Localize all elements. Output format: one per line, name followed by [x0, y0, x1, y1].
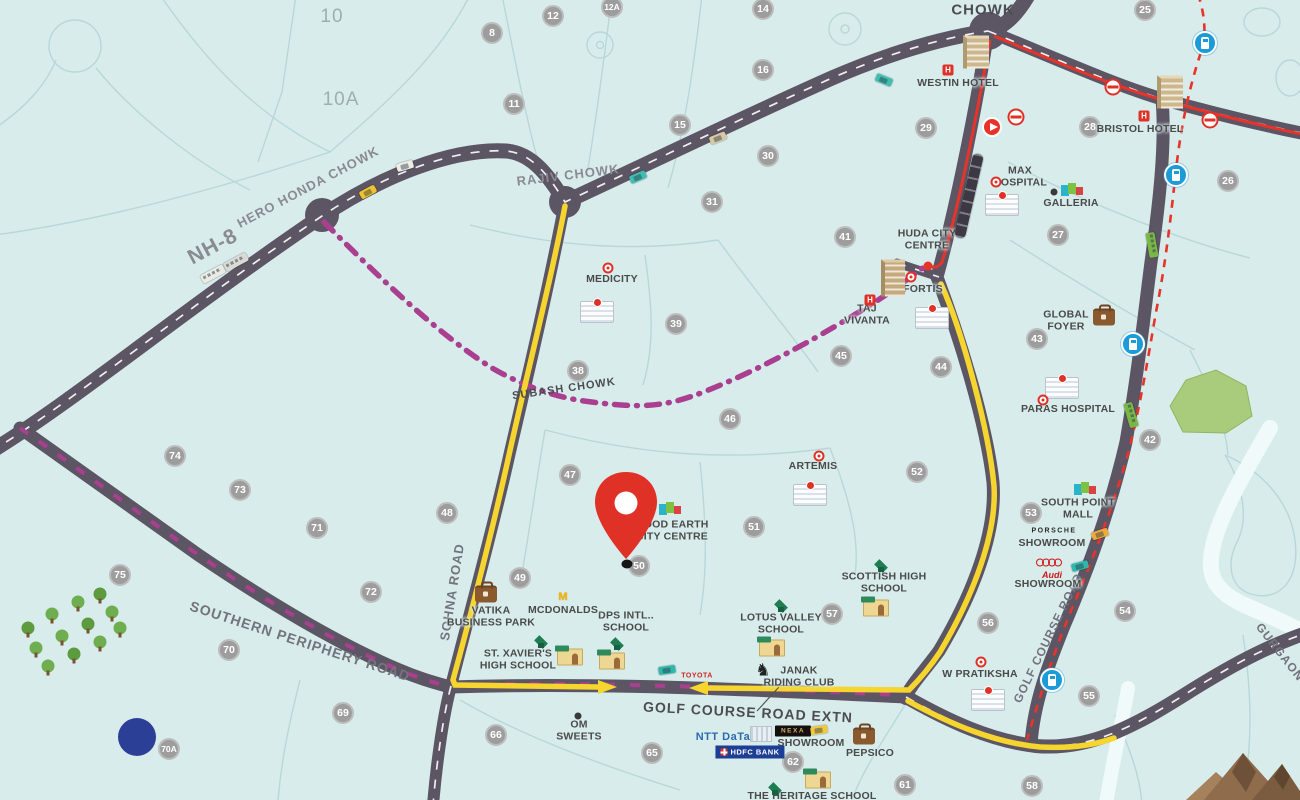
hotel-h-badge-icon: H: [943, 65, 954, 76]
poi-label: SOUTH POINT MALL: [1041, 497, 1115, 522]
car-graphic: [875, 73, 894, 87]
poi-label: BRISTOL HOTEL: [1097, 123, 1184, 135]
tree-icon: [94, 588, 107, 601]
riding-club-horse-icon: ♞: [755, 663, 770, 680]
rapid-metro-station-icon: [1121, 332, 1145, 356]
bus-graphic: [1145, 232, 1158, 258]
sector-number-marker: 72: [360, 581, 382, 603]
sector-number-marker: 26: [1217, 170, 1239, 192]
location-map: 1010ANH-8HERO HONDA CHOWKRAJIV CHOWKCHOW…: [0, 0, 1300, 800]
audi-word-logo: Audi: [1042, 570, 1062, 580]
sector-number-marker: 53: [1020, 502, 1042, 524]
hospital-marker-icon: [814, 451, 825, 462]
business-park-icon: [853, 728, 875, 745]
poi-label: OM SWEETS: [556, 719, 602, 744]
graduation-cap-icon: [533, 636, 549, 646]
graduation-cap-icon: [873, 560, 889, 570]
pond: [118, 718, 156, 756]
sector-number-marker: 48: [436, 502, 458, 524]
poi-label: JANAK RIDING CLUB: [763, 665, 834, 690]
hospital-marker-icon: [976, 657, 987, 668]
car-graphic: [658, 665, 676, 675]
graduation-cap-icon: [773, 600, 789, 610]
sector-area-label: 10A: [323, 89, 360, 111]
school-building-icon: [805, 772, 831, 789]
sector-number-marker: 41: [834, 226, 856, 248]
sector-number-marker: 65: [641, 742, 663, 764]
poi-label: MAX HOSPITAL: [993, 165, 1047, 190]
tree-icon: [22, 622, 35, 635]
sector-number-marker: 52: [906, 461, 928, 483]
tree-icon: [30, 642, 43, 655]
hotel-h-badge-icon: H: [1139, 111, 1150, 122]
sector-number-marker: 14: [752, 0, 774, 20]
sector-number-marker: 66: [485, 724, 507, 746]
hospital-marker-icon: [906, 272, 917, 283]
hotel-h-badge-icon: H: [865, 295, 876, 306]
school-building-icon: [863, 600, 889, 617]
metro-logo-icon: [1202, 112, 1219, 129]
poi-label: WESTIN HOTEL: [917, 77, 999, 89]
sector-number-marker: 54: [1114, 600, 1136, 622]
car-graphic: [1091, 528, 1110, 541]
tree-icon: [94, 636, 107, 649]
poi-label: MCDONALDS: [528, 604, 598, 616]
sector-number-marker: 56: [977, 612, 999, 634]
car-graphic: [709, 131, 728, 145]
poi-label: ARTEMIS: [789, 460, 838, 472]
school-building-icon: [557, 649, 583, 666]
direction-arrow-icon: [982, 117, 1002, 137]
hospital-building-icon: [971, 689, 1005, 711]
mcdonalds-icon: M: [558, 591, 567, 603]
car-graphic: [810, 725, 828, 735]
hdfc-logo: HDFC BANK: [715, 746, 784, 759]
rapid-metro-station-icon: [1193, 31, 1217, 55]
tree-icon: [46, 608, 59, 621]
sector-number-marker: 49: [509, 567, 531, 589]
sector-number-marker: 70A: [158, 738, 180, 760]
sector-number-marker: 44: [930, 356, 952, 378]
sector-number-marker: 50: [628, 555, 650, 577]
tree-icon: [42, 660, 55, 673]
sector-number-marker: 55: [1078, 685, 1100, 707]
sector-number-marker: 47: [559, 464, 581, 486]
bus-graphic: [223, 252, 249, 272]
mall-icon: [659, 502, 685, 516]
hospital-building-icon: [985, 194, 1019, 216]
porsche-logo: PORSCHE: [1031, 528, 1076, 535]
road-label: RAJIV CHOWK: [516, 161, 621, 188]
road-label: CHOWK: [951, 2, 1014, 19]
poi-label: SHOWROOM: [778, 737, 845, 749]
poi-label: GLOBAL FOYER: [1043, 309, 1089, 334]
sector-number-marker: 27: [1047, 224, 1069, 246]
tree-icon: [106, 606, 119, 619]
metro-train-graphic: [954, 153, 984, 239]
bus-graphic: [200, 264, 226, 284]
poi-label: MEDICITY: [586, 273, 638, 285]
business-park-icon: [1093, 309, 1115, 326]
sector-number-marker: 31: [701, 191, 723, 213]
sector-number-marker: 29: [915, 117, 937, 139]
sector-number-marker: 39: [665, 313, 687, 335]
hospital-building-icon: [915, 307, 949, 329]
map-markers-layer: 1010ANH-8HERO HONDA CHOWKRAJIV CHOWKCHOW…: [0, 0, 1300, 800]
hospital-building-icon: [1045, 377, 1079, 399]
tree-icon: [72, 596, 85, 609]
graduation-cap-icon: [609, 638, 625, 648]
tree-icon: [82, 618, 95, 631]
sector-number-marker: 8: [481, 22, 503, 44]
metro-logo-icon: [1105, 79, 1122, 96]
mall-icon: [1061, 183, 1087, 197]
metro-logo-icon: [1008, 109, 1025, 126]
sector-number-marker: 38: [567, 360, 589, 382]
place-dot-icon: [1051, 189, 1058, 196]
sector-number-marker: 42: [1139, 429, 1161, 451]
poi-label: PEPSICO: [846, 747, 894, 759]
road-label: GURGAON: [1253, 620, 1300, 684]
mall-icon: [1074, 482, 1100, 496]
sector-number-marker: 70: [218, 639, 240, 661]
sector-number-marker: 74: [164, 445, 186, 467]
sector-number-marker: 12: [542, 5, 564, 27]
sector-number-marker: 12A: [601, 0, 623, 18]
car-graphic: [359, 184, 378, 199]
sector-number-marker: 45: [830, 345, 852, 367]
hospital-building-icon: [793, 484, 827, 506]
car-graphic: [629, 170, 648, 184]
sector-area-label: 10: [320, 6, 343, 28]
rapid-metro-station-icon: [1040, 668, 1064, 692]
sector-number-marker: 75: [109, 564, 131, 586]
road-label: HERO HONDA CHOWK: [234, 143, 381, 231]
poi-label: SCOTTISH HIGH SCHOOL: [842, 571, 927, 596]
poi-label: HUDA CITY CENTRE: [898, 228, 957, 253]
sector-number-marker: 71: [306, 517, 328, 539]
sector-number-marker: 11: [503, 93, 525, 115]
sector-number-marker: 61: [894, 774, 916, 796]
tower-building-icon: [881, 260, 905, 297]
poi-label: VATIKA BUSINESS PARK: [447, 605, 535, 630]
poi-label: DPS INTL.. SCHOOL: [598, 610, 654, 635]
car-graphic: [396, 160, 415, 172]
poi-label: LOTUS VALLEY SCHOOL: [740, 612, 822, 637]
sector-number-marker: 62: [782, 751, 804, 773]
nexa-logo: NEXA: [775, 726, 811, 737]
place-dot-icon: [575, 713, 582, 720]
hotel-building-icon: [963, 36, 989, 69]
poi-label: GALLERIA: [1043, 197, 1098, 209]
toyota-logo: TOYOTA: [681, 673, 713, 680]
ntt-logo: NTT DaTa: [696, 731, 751, 743]
school-building-icon: [599, 653, 625, 670]
sector-number-marker: 25: [1134, 0, 1156, 21]
sector-number-marker: 30: [757, 145, 779, 167]
sector-number-marker: 46: [719, 408, 741, 430]
sector-number-marker: 16: [752, 59, 774, 81]
bus-graphic: [1123, 402, 1139, 429]
sector-number-marker: 73: [229, 479, 251, 501]
poi-label: PARAS HOSPITAL: [1021, 403, 1115, 415]
business-park-icon: [475, 586, 497, 603]
tree-icon: [56, 630, 69, 643]
office-building-icon: [750, 726, 772, 742]
hospital-marker-icon: [991, 177, 1002, 188]
tree-icon: [68, 648, 81, 661]
hotel-building-icon: [1157, 76, 1183, 109]
hospital-building-icon: [580, 301, 614, 323]
poi-label: SHOWROOM: [1019, 537, 1086, 549]
road-label: SUBASH CHOWK: [512, 376, 617, 402]
poi-label: FORTIS: [903, 283, 943, 295]
rapid-metro-station-icon: [1164, 163, 1188, 187]
hospital-marker-icon: [1038, 395, 1049, 406]
tree-icon: [114, 622, 127, 635]
sector-number-marker: 51: [743, 516, 765, 538]
car-graphic: [1071, 560, 1089, 572]
sector-number-marker: 69: [332, 702, 354, 724]
road-label: GOLF COURSE ROAD EXTN: [643, 699, 854, 726]
sector-number-marker: 58: [1021, 775, 1043, 797]
poi-label: W PRATIKSHA: [942, 668, 1018, 680]
sector-number-marker: 15: [669, 114, 691, 136]
poi-label: GOOD EARTH CITY CENTRE: [635, 519, 708, 544]
graduation-cap-icon: [767, 783, 783, 793]
school-building-icon: [759, 640, 785, 657]
audi-rings-icon: [1038, 559, 1068, 568]
poi-label: ST. XAVIER'S HIGH SCHOOL: [480, 648, 556, 673]
sector-number-marker: 57: [821, 603, 843, 625]
hospital-marker-icon: [603, 263, 614, 274]
poi-label: TAJ VIVANTA: [844, 303, 890, 328]
